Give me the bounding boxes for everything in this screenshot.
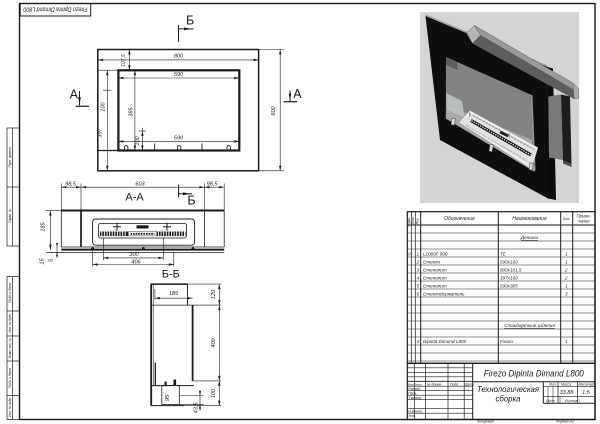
svg-text:107,5: 107,5 — [121, 54, 127, 67]
svg-text:Стандартные изделия: Стандартные изделия — [504, 323, 555, 328]
svg-text:590х385: 590х385 — [500, 284, 518, 289]
svg-text:Лист: Лист — [545, 399, 555, 403]
svg-text:Т.контр.: Т.контр. — [408, 396, 422, 400]
svg-text:1: 1 — [417, 252, 420, 257]
svg-text:603: 603 — [135, 181, 145, 187]
svg-text:1: 1 — [565, 260, 568, 265]
svg-text:600: 600 — [271, 105, 277, 115]
svg-text:Dipinta Dimond-L800: Dipinta Dimond-L800 — [423, 339, 467, 344]
svg-text:185: 185 — [169, 291, 179, 297]
svg-text:Б-Б: Б-Б — [162, 269, 180, 281]
svg-text:100: 100 — [211, 388, 217, 398]
svg-text:Справ. №: Справ. № — [8, 208, 12, 223]
svg-text:Детали: Детали — [520, 235, 539, 240]
svg-text:А-А: А-А — [125, 191, 144, 203]
svg-text:Разраб.: Разраб. — [408, 387, 420, 391]
svg-text:98,5: 98,5 — [65, 181, 77, 187]
svg-text:Стенолит: Стенолит — [423, 268, 447, 273]
svg-text:А: А — [293, 87, 302, 101]
svg-text:590: 590 — [174, 72, 184, 78]
svg-text:Зона: Зона — [411, 217, 415, 224]
svg-text:Масса: Масса — [561, 383, 571, 387]
svg-text:Firezo Dipinta Dimand L800: Firezo Dipinta Dimand L800 — [484, 369, 584, 379]
svg-text:Подп. и дата: Подп. и дата — [8, 368, 12, 388]
svg-text:2: 2 — [564, 268, 568, 273]
svg-text:100: 100 — [135, 135, 141, 145]
svg-text:1: 1 — [565, 252, 568, 257]
svg-text:1:5: 1:5 — [582, 390, 591, 396]
svg-text:43,5: 43,5 — [194, 402, 200, 414]
svg-text:406: 406 — [131, 259, 141, 265]
svg-text:Копировал: Копировал — [477, 420, 494, 424]
svg-text:0: 0 — [408, 252, 411, 257]
svg-text:Обозначение: Обозначение — [444, 216, 475, 222]
svg-text:2: 2 — [416, 260, 420, 265]
svg-text:Дата: Дата — [464, 383, 474, 387]
svg-text:385: 385 — [129, 106, 135, 116]
svg-text:Стенолит: Стенолит — [423, 276, 447, 281]
svg-text:185: 185 — [41, 221, 47, 231]
svg-text:Перв. примен.: Перв. примен. — [8, 146, 12, 167]
svg-text:95: 95 — [165, 394, 171, 401]
svg-text:Формат А2: Формат А2 — [556, 420, 575, 424]
svg-text:Н.контр.: Н.контр. — [408, 410, 422, 414]
svg-text:4: 4 — [417, 339, 420, 344]
svg-text:Пров.: Пров. — [408, 392, 417, 396]
svg-text:Стекло: Стекло — [423, 260, 440, 265]
svg-text:2: 2 — [564, 276, 568, 281]
svg-text:Утв.: Утв. — [408, 414, 416, 418]
svg-text:ТЕ: ТЕ — [500, 252, 507, 257]
svg-text:5: 5 — [417, 284, 420, 289]
svg-text:120: 120 — [211, 289, 217, 299]
svg-text:590х100: 590х100 — [500, 260, 518, 265]
svg-text:Технологическая: Технологическая — [477, 385, 540, 394]
svg-text:800х101,5: 800х101,5 — [500, 268, 522, 273]
svg-text:Взам. инв. №: Взам. инв. № — [8, 338, 12, 358]
svg-text:Поз.: Поз. — [416, 218, 420, 225]
svg-text:Листов 1: Листов 1 — [564, 399, 580, 403]
svg-text:Изм Лист: Изм Лист — [408, 383, 423, 387]
svg-text:Подп.: Подп. — [450, 383, 459, 387]
svg-text:100: 100 — [101, 101, 107, 111]
svg-text:15: 15 — [40, 258, 46, 265]
svg-text:Инв. № дубл.: Инв. № дубл. — [8, 313, 12, 333]
svg-text:№ докум.: № докум. — [427, 383, 442, 387]
svg-text:Инв. № подл.: Инв. № подл. — [8, 397, 12, 417]
svg-text:1: 1 — [565, 284, 568, 289]
svg-text:Кол.: Кол. — [563, 217, 570, 221]
svg-text:Стеклодержатель: Стеклодержатель — [423, 292, 465, 297]
svg-text:А: А — [70, 88, 79, 102]
svg-text:Б: Б — [187, 194, 195, 208]
svg-text:Лит.: Лит. — [548, 383, 557, 387]
svg-text:чание: чание — [578, 219, 590, 224]
svg-text:Firezo: Firezo — [500, 339, 513, 344]
svg-text:98,5: 98,5 — [207, 181, 219, 187]
svg-text:6: 6 — [417, 292, 420, 297]
svg-text:3: 3 — [565, 292, 568, 297]
svg-text:сборка: сборка — [496, 394, 522, 403]
svg-text:33,88: 33,88 — [560, 390, 575, 396]
svg-text:300: 300 — [129, 252, 139, 258]
svg-text:4: 4 — [417, 276, 420, 281]
svg-text:3: 3 — [417, 268, 420, 273]
svg-text:1: 1 — [565, 339, 568, 344]
svg-text:Масштаб: Масштаб — [579, 383, 595, 387]
svg-text:Стенолит: Стенолит — [423, 284, 447, 289]
svg-text:Подп. и дата: Подп. и дата — [8, 283, 12, 303]
svg-text:Firezo Dpinta Dimand L800: Firezo Dpinta Dimand L800 — [23, 6, 88, 12]
svg-text:397х100: 397х100 — [500, 276, 518, 281]
svg-text:800: 800 — [174, 54, 184, 60]
svg-text:Наименование: Наименование — [512, 216, 547, 222]
svg-text:L1000F 900: L1000F 900 — [423, 252, 448, 257]
svg-text:397: 397 — [98, 127, 104, 137]
svg-text:Б: Б — [186, 14, 194, 28]
svg-text:590: 590 — [174, 135, 184, 141]
svg-text:400: 400 — [211, 337, 217, 347]
